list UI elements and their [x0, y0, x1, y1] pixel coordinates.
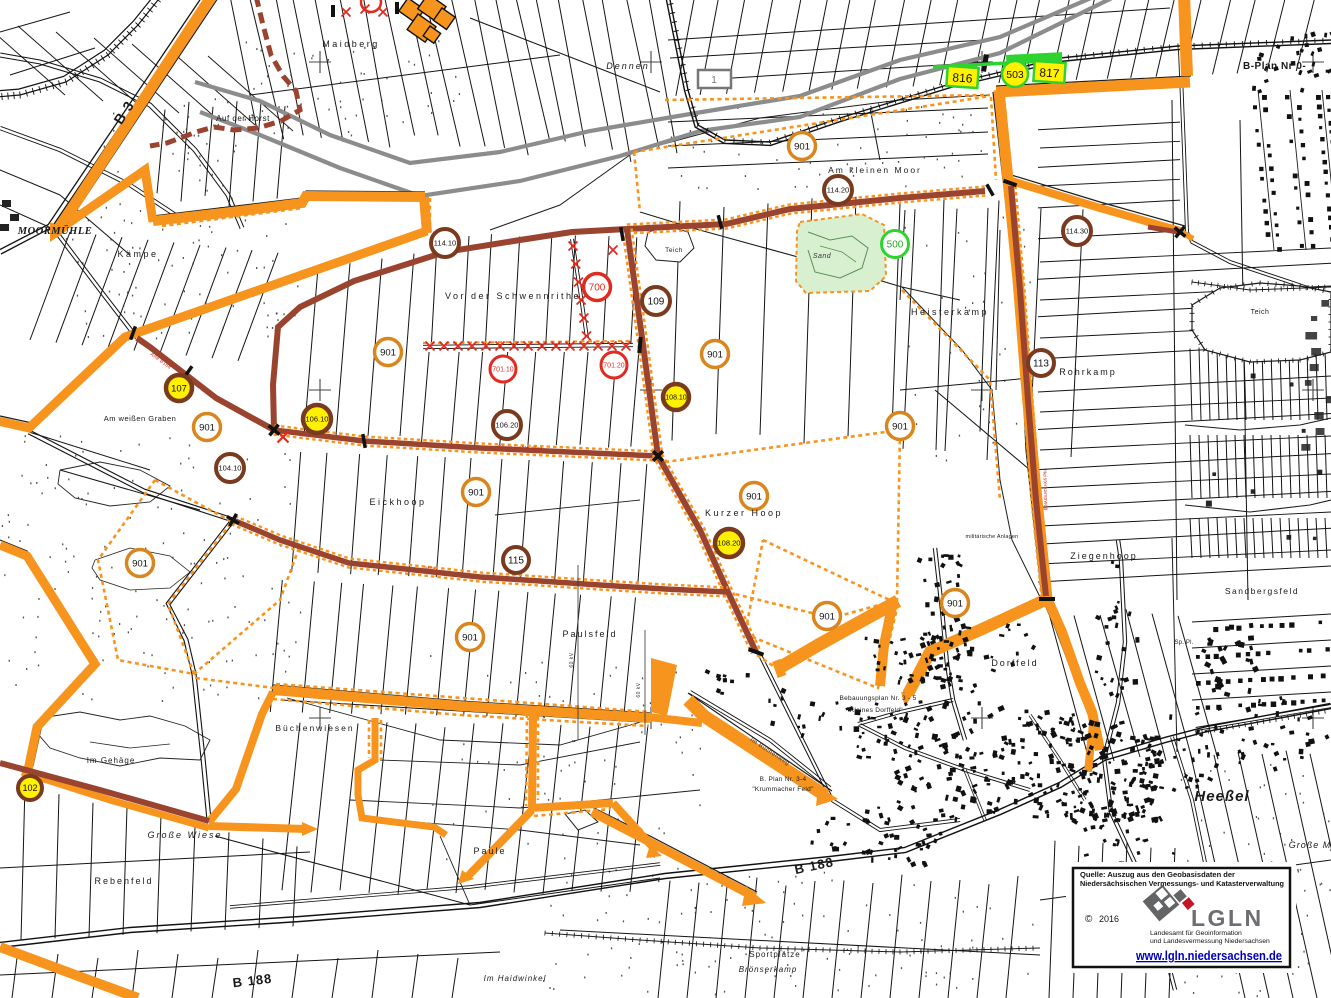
svg-text:700: 700: [589, 283, 606, 294]
svg-text:Büchenwiesen: Büchenwiesen: [275, 723, 354, 733]
svg-text:108.20: 108.20: [718, 539, 741, 548]
svg-text:B-Plan Nr 0-: B-Plan Nr 0-: [1243, 61, 1306, 72]
svg-text:Kämpe: Kämpe: [117, 249, 158, 259]
svg-text:901: 901: [892, 421, 908, 432]
svg-text:901: 901: [947, 598, 963, 609]
svg-text:Auf der Horst: Auf der Horst: [216, 114, 270, 123]
svg-text:114.30: 114.30: [1066, 227, 1088, 236]
svg-text:Paulsfeld: Paulsfeld: [562, 629, 617, 639]
svg-text:und Landesvermessung Niedersac: und Landesvermessung Niedersachsen: [1150, 938, 1270, 945]
svg-text:Vor der Schwennrithe: Vor der Schwennrithe: [445, 291, 581, 301]
svg-text:114.10: 114.10: [434, 239, 456, 248]
svg-text:901: 901: [819, 611, 835, 622]
svg-text:Sand: Sand: [813, 253, 832, 260]
svg-text:MOORMÜHLE: MOORMÜHLE: [17, 224, 93, 237]
svg-text:Große Wiese: Große Wiese: [148, 830, 223, 840]
svg-text:B. Plan Nr. 3-4: B. Plan Nr. 3-4: [760, 776, 807, 783]
svg-text:Sandbergsfeld: Sandbergsfeld: [1225, 586, 1299, 596]
svg-text:Große M: Große M: [1289, 840, 1331, 850]
svg-text:901: 901: [468, 487, 484, 498]
svg-text:Eickhoop: Eickhoop: [369, 497, 426, 507]
svg-text:Dennen: Dennen: [606, 61, 650, 71]
svg-text:Sp. Pl.: Sp. Pl.: [1174, 640, 1193, 646]
svg-text:901: 901: [462, 632, 478, 643]
svg-text:Quelle: Auszug aus den Geobas: Quelle: Auszug aus den Geobasisdaten der: [1080, 870, 1235, 879]
svg-text:901: 901: [199, 422, 215, 433]
svg-text:Heisterkamp: Heisterkamp: [911, 307, 989, 317]
svg-text:108.10: 108.10: [665, 395, 687, 402]
svg-text:104.10: 104.10: [219, 464, 242, 473]
svg-text:901: 901: [380, 347, 396, 358]
svg-text:Rebenfeld: Rebenfeld: [94, 876, 153, 886]
svg-text:60 kV: 60 kV: [569, 652, 575, 667]
svg-text:Teich: Teich: [665, 247, 683, 254]
svg-text:901: 901: [746, 491, 762, 502]
svg-text:Dorffeld: Dorffeld: [991, 658, 1038, 668]
svg-text:©: ©: [1085, 914, 1093, 925]
svg-text:Landesamt für Geoinformation: Landesamt für Geoinformation: [1150, 930, 1242, 937]
svg-text:Paule: Paule: [473, 846, 506, 856]
svg-text:Teich: Teich: [1251, 309, 1270, 316]
svg-text:M28: M28: [425, 566, 436, 573]
svg-text:LGLN: LGLN: [1191, 905, 1264, 931]
svg-text:113: 113: [1033, 359, 1049, 370]
svg-text:Brönserkamp: Brönserkamp: [739, 965, 798, 974]
svg-text:Rohrkamp: Rohrkamp: [1059, 367, 1117, 377]
svg-text:2016: 2016: [1099, 914, 1119, 924]
svg-text:1: 1: [711, 75, 717, 86]
svg-text:www.lgln.niedersachsen.de: www.lgln.niedersachsen.de: [1135, 948, 1282, 963]
svg-text:901: 901: [707, 349, 723, 360]
svg-text:Heeßel: Heeßel: [1194, 788, 1249, 805]
svg-text:701.20: 701.20: [603, 363, 625, 370]
svg-text:Kurzer Hoop: Kurzer Hoop: [705, 508, 783, 518]
svg-text:901: 901: [132, 558, 148, 569]
svg-text:817: 817: [1039, 65, 1060, 80]
svg-text:Im Gehäge: Im Gehäge: [87, 756, 136, 765]
svg-text:503: 503: [1006, 69, 1024, 81]
svg-text:Bebauungsplan Nr. 3 - 5: Bebauungsplan Nr. 3 - 5: [839, 695, 916, 702]
svg-text:Im Haidwinkel: Im Haidwinkel: [484, 974, 547, 983]
svg-text:Am kleinen Moor: Am kleinen Moor: [828, 165, 922, 175]
svg-text:107: 107: [171, 383, 187, 394]
svg-text:500: 500: [887, 240, 904, 251]
svg-text:109: 109: [648, 297, 665, 308]
svg-text:Ziegenhoop: Ziegenhoop: [1070, 551, 1138, 561]
svg-text:901: 901: [794, 141, 810, 152]
svg-text:114.20: 114.20: [827, 186, 849, 195]
svg-text:"Kleines Dorffeld": "Kleines Dorffeld": [847, 707, 903, 714]
svg-text:102: 102: [22, 783, 37, 793]
svg-text:701.10: 701.10: [492, 367, 514, 374]
svg-text:115: 115: [508, 556, 524, 567]
svg-text:militärische Anlagen: militärische Anlagen: [966, 534, 1019, 540]
svg-text:60 kV: 60 kV: [636, 682, 642, 697]
svg-text:816: 816: [952, 70, 973, 85]
svg-text:106.20: 106.20: [496, 421, 519, 430]
svg-text:Am weißen Graben: Am weißen Graben: [104, 414, 177, 423]
svg-text:Sportplätze: Sportplätze: [749, 950, 800, 959]
svg-text:Maidberg: Maidberg: [322, 39, 380, 49]
svg-text:"Krummacher Feld": "Krummacher Feld": [752, 786, 814, 793]
svg-text:106.10: 106.10: [306, 415, 329, 424]
svg-text:Niedersächsischen Vermessungs-: Niedersächsischen Vermessungs- und Katas…: [1080, 879, 1284, 888]
